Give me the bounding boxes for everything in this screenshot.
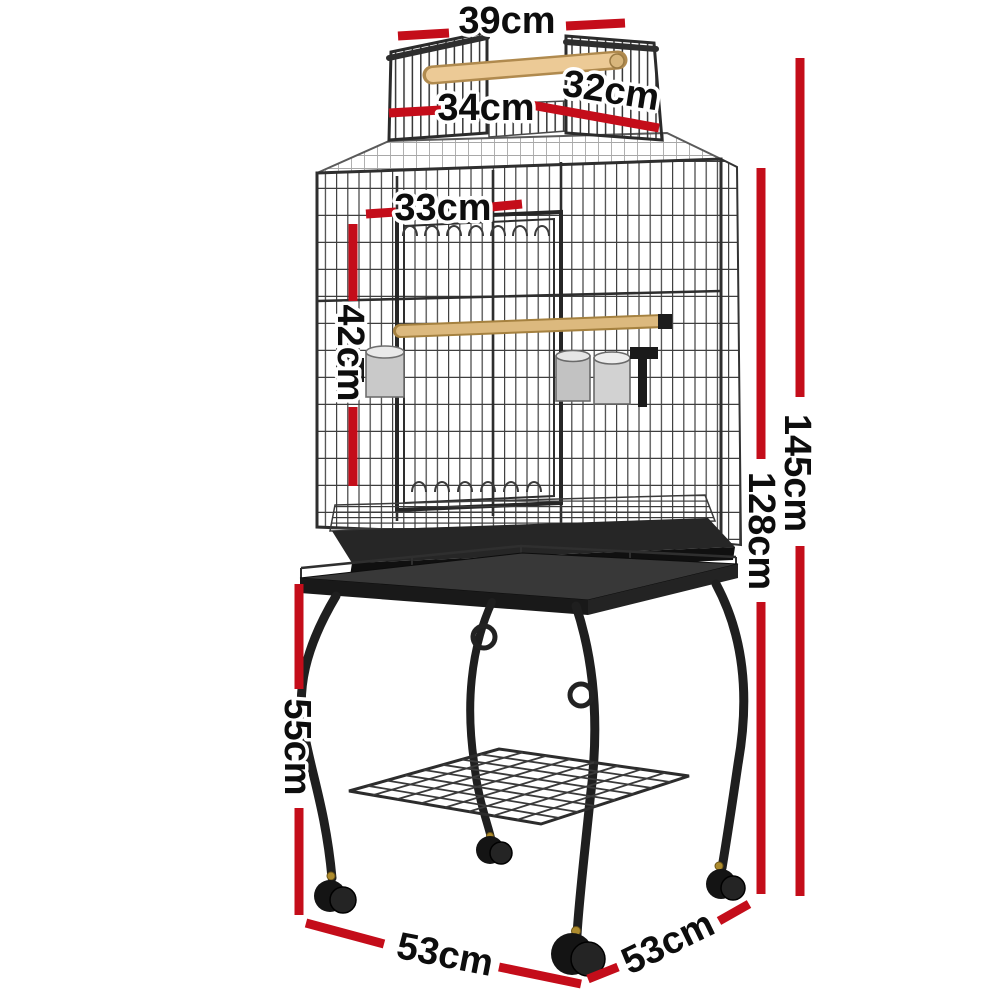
caster-left-wheel2 <box>330 887 356 913</box>
dim-label-front-door-width: 33cm <box>394 187 491 229</box>
line-53cm-right-b <box>719 904 749 921</box>
dim-label-left-roof-door: 34cm <box>437 87 534 129</box>
dim-label-cage-height: 128cm <box>740 472 782 590</box>
line-39cm-right <box>566 23 625 26</box>
feeder-bowl-right-cup2 <box>594 358 630 404</box>
birdcage-illustration <box>300 32 745 976</box>
caster-screw-right <box>715 862 723 870</box>
feeder-bowl-right-rim1 <box>556 351 590 362</box>
dim-label-base-side-right: 53cm <box>615 903 721 983</box>
feeder-bowl-right-cup1 <box>556 356 590 401</box>
line-53cm-left-a <box>306 923 384 944</box>
caster-wheel-back <box>476 833 512 865</box>
stand-shelf <box>349 749 689 824</box>
stand-leg-right <box>716 584 744 868</box>
cage-side-face <box>721 159 741 545</box>
dimension-diagram: 39cm 34cm 32cm 33cm 42cm 145cm 128cm 55c… <box>0 0 1000 1000</box>
caster-wheel-front <box>551 927 605 977</box>
dim-label-top-handle-width: 39cm <box>458 0 555 42</box>
dim-label-stand-height: 55cm <box>276 698 318 795</box>
dim-label-base-side-left: 53cm <box>393 925 496 985</box>
feeder-bowl-right-latch <box>638 347 647 407</box>
caster-back-wheel2 <box>490 842 512 864</box>
play-top-perch-end <box>610 54 624 68</box>
line-39cm-left <box>398 33 449 36</box>
dim-label-upper-section-height: 42cm <box>329 304 371 401</box>
leg-ring-ornament-front <box>570 684 592 706</box>
product-dimension-image: 39cm 34cm 32cm 33cm 42cm 145cm 128cm 55c… <box>0 0 1000 1000</box>
feeder-bowl-right-rim2 <box>594 352 630 364</box>
line-33cm-right <box>491 204 522 207</box>
caster-screw-left <box>327 872 335 880</box>
feeder-bowl-right <box>556 347 658 407</box>
interior-perch-bracket <box>658 314 672 329</box>
line-33cm-left <box>366 212 396 214</box>
caster-right-wheel2 <box>721 876 745 900</box>
line-34cm-left <box>389 110 441 113</box>
